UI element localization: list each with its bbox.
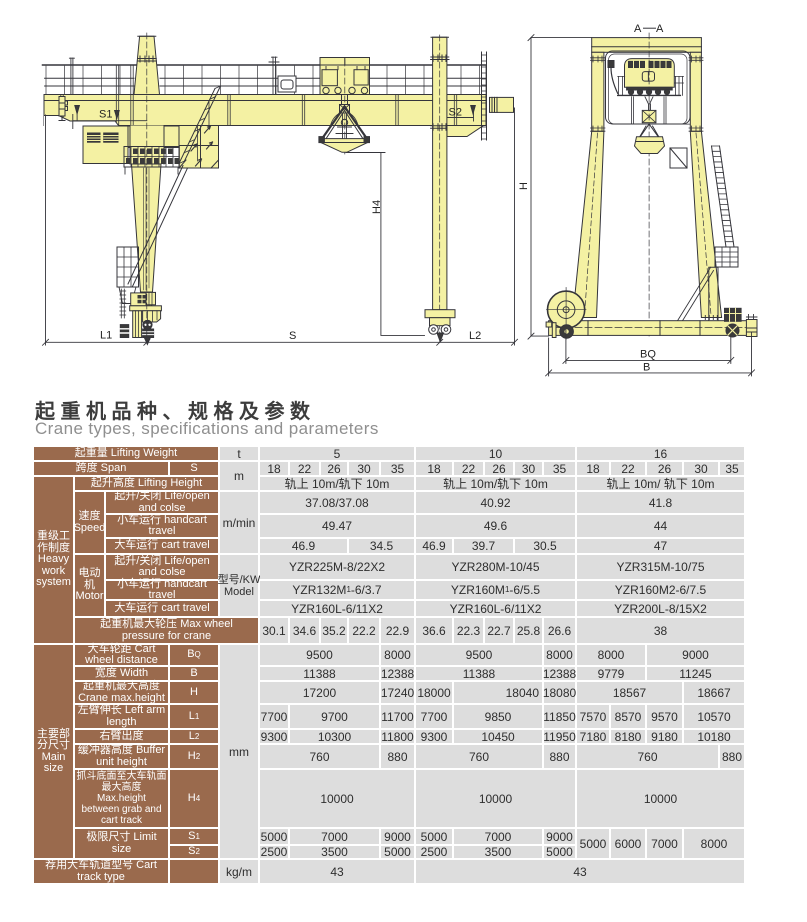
svg-text:B: B bbox=[643, 361, 650, 373]
svg-text:H4: H4 bbox=[371, 200, 383, 214]
svg-text:S1: S1 bbox=[99, 109, 112, 121]
svg-text:A: A bbox=[634, 23, 642, 35]
svg-text:A: A bbox=[656, 23, 664, 35]
svg-text:L1: L1 bbox=[100, 330, 112, 342]
svg-text:S2: S2 bbox=[449, 107, 462, 119]
svg-text:L2: L2 bbox=[469, 330, 481, 342]
svg-text:S: S bbox=[289, 330, 296, 342]
svg-text:BQ: BQ bbox=[640, 349, 656, 361]
svg-text:H: H bbox=[518, 182, 530, 190]
